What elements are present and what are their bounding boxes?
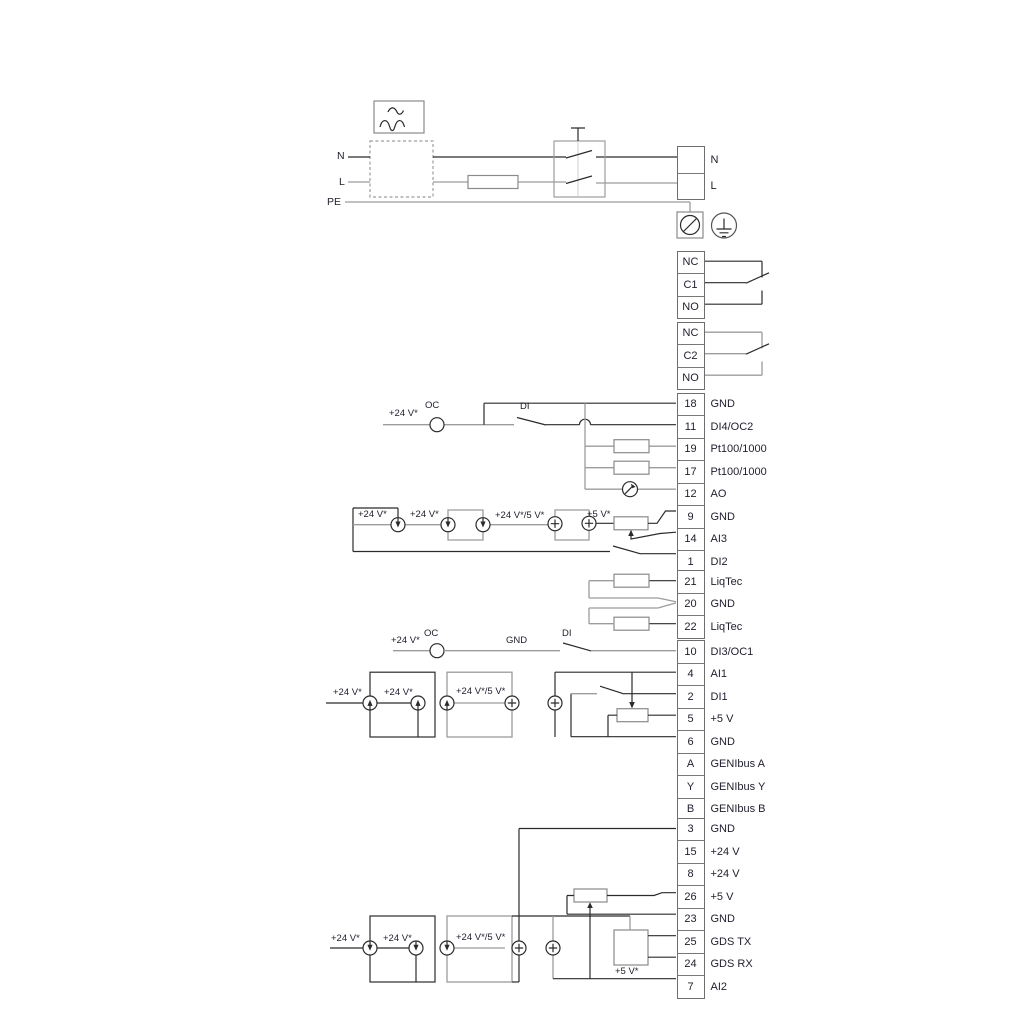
terminal-block-io-top: 18GND11DI4/OC219Pt100/100017Pt100/100012…	[677, 393, 705, 574]
terminal-block-io-bottom: 3GND15+24 V8+24 V26+5 V23GND25GDS TX24GD…	[677, 818, 705, 999]
mains-pe-label: PE	[327, 196, 341, 208]
di3-oc1-circuit	[393, 643, 676, 658]
terminal-row: 22LiqTec	[678, 615, 704, 638]
source-frame-1	[370, 916, 435, 982]
terminal-label: GND	[711, 736, 735, 748]
supply-label: +24 V*	[331, 933, 360, 944]
emc-filter-box	[370, 141, 433, 197]
terminal-block-mains: NL	[677, 146, 705, 200]
terminal-label: DI3/OC1	[711, 646, 754, 658]
wiring-diagram: N L PE +24 V* OC DI +24 V* +24 V* +24 V*…	[0, 0, 1024, 1024]
analog-output-meter-symbol	[623, 482, 638, 497]
terminal-label: GDS TX	[711, 936, 752, 948]
terminal-label: DI1	[711, 691, 728, 703]
mains-n-label: N	[337, 150, 345, 162]
voltage-source-plus-icon	[546, 941, 560, 955]
terminal-row: N	[678, 147, 704, 173]
terminal-row: 5+5 V	[678, 708, 704, 731]
terminal-label: GDS RX	[711, 958, 753, 970]
terminal-row: 9GND	[678, 505, 704, 528]
terminal-row: NC	[678, 323, 704, 345]
ai1-di1-source-circuit	[326, 672, 676, 737]
terminal-label: GND	[711, 823, 735, 835]
current-source-down-icon	[391, 518, 405, 532]
supply-label: +5 V*	[615, 966, 639, 977]
potentiometer-ai3	[614, 517, 648, 530]
terminal-label: GND	[711, 598, 735, 610]
pt100-resistor-2	[614, 461, 649, 474]
terminal-label: AI3	[711, 533, 728, 545]
terminal-block-liqtec: 21LiqTec20GND22LiqTec	[677, 570, 705, 639]
current-source-up-icon	[411, 696, 425, 710]
terminal-label: +24 V	[711, 846, 740, 858]
supply-label: +24 V*/5 V*	[456, 932, 505, 943]
oc-output-symbol	[430, 418, 444, 432]
terminal-label: N	[711, 154, 719, 166]
supply-label: +24 V*	[383, 933, 412, 944]
protective-earth-icon	[712, 213, 737, 238]
gds-sensor-box	[614, 916, 676, 965]
terminal-row: YGENIbus Y	[678, 775, 704, 798]
terminal-row: 3GND	[678, 819, 704, 841]
potentiometer-ai2	[574, 889, 607, 902]
potentiometer-ai1	[617, 709, 648, 722]
terminal-row: AGENIbus A	[678, 753, 704, 776]
pt100-sensors-circuit	[585, 403, 676, 497]
terminal-label: GND	[711, 913, 735, 925]
terminal-row: 23GND	[678, 908, 704, 931]
terminal-row: 24GDS RX	[678, 953, 704, 976]
terminal-label: GENIbus Y	[711, 781, 766, 793]
current-source-down-icon	[476, 518, 490, 532]
terminal-row: 10DI3/OC1	[678, 641, 704, 663]
voltage-source-plus-icon	[548, 517, 562, 531]
terminal-label: AI2	[711, 981, 728, 993]
terminal-label: GENIbus A	[711, 758, 765, 770]
voltage-source-plus-icon	[505, 696, 519, 710]
liqtec-sensors-circuit	[589, 574, 676, 630]
terminal-row: 19Pt100/1000	[678, 438, 704, 461]
terminal-row: 26+5 V	[678, 885, 704, 908]
terminal-label: +5 V	[711, 891, 734, 903]
terminal-label: GND	[711, 398, 735, 410]
terminal-row: 14AI3	[678, 528, 704, 551]
terminal-row: 20GND	[678, 593, 704, 616]
terminal-row: 7AI2	[678, 975, 704, 998]
supply-label: +24 V*	[358, 509, 387, 520]
current-source-down-icon	[441, 518, 455, 532]
terminal-block-io-mid: 10DI3/OC14AI12DI15+5 V6GNDAGENIbus AYGEN…	[677, 640, 705, 821]
terminal-label: Pt100/1000	[711, 466, 767, 478]
liqtec-sensor-2	[614, 617, 649, 630]
terminal-label: GND	[711, 511, 735, 523]
terminal-label: GENIbus B	[711, 803, 766, 815]
oc-output-symbol	[430, 644, 444, 658]
source-frame-2	[447, 672, 512, 737]
terminal-row: 21LiqTec	[678, 571, 704, 593]
di-label: DI	[520, 401, 530, 412]
terminal-block-relay1: NCC1NO	[677, 251, 705, 320]
terminal-row: NC	[678, 252, 704, 274]
ai2-gds-source-circuit	[330, 829, 676, 983]
di-label: DI	[562, 628, 572, 639]
terminal-row: 15+24 V	[678, 840, 704, 863]
terminal-row: 17Pt100/1000	[678, 460, 704, 483]
terminal-row: L	[678, 173, 704, 200]
terminal-label: +24 V	[711, 868, 740, 880]
terminal-row: 4AI1	[678, 663, 704, 686]
terminal-row: C2	[678, 344, 704, 367]
terminal-label: DI4/OC2	[711, 421, 754, 433]
terminal-row: C1	[678, 273, 704, 296]
terminal-row: 2DI1	[678, 685, 704, 708]
terminal-block-relay2: NCC2NO	[677, 322, 705, 391]
supply-label: +5 V*	[587, 509, 611, 520]
terminal-label: +5 V	[711, 713, 734, 725]
supply-label: +24 V*	[389, 408, 418, 419]
oc-label: OC	[424, 628, 438, 639]
main-switch	[554, 128, 605, 197]
terminal-row: 11DI4/OC2	[678, 415, 704, 438]
terminal-label: LiqTec	[711, 621, 743, 633]
gnd-label: GND	[506, 635, 527, 646]
current-source-up-icon	[363, 696, 377, 710]
supply-label: +24 V*	[391, 635, 420, 646]
terminal-label: Pt100/1000	[711, 443, 767, 455]
current-source-up-icon	[440, 696, 454, 710]
liqtec-sensor-1	[614, 574, 649, 587]
supply-label: +24 V*	[333, 687, 362, 698]
fuse-symbol	[468, 176, 518, 189]
terminal-row: NO	[678, 296, 704, 319]
terminal-row: 25GDS TX	[678, 930, 704, 953]
terminal-label: AI1	[711, 668, 728, 680]
supply-label: +24 V*/5 V*	[495, 510, 544, 521]
source-frame-2	[447, 916, 512, 982]
relay1-circuit	[702, 261, 769, 304]
voltage-source-plus-icon	[548, 696, 562, 710]
ac-source-symbol	[374, 101, 424, 133]
terminal-label: L	[711, 180, 717, 192]
voltage-source-plus-icon	[512, 941, 526, 955]
pt100-resistor-1	[614, 440, 649, 453]
terminal-row: NO	[678, 367, 704, 390]
terminal-row: 18GND	[678, 394, 704, 416]
terminal-row: 12AO	[678, 483, 704, 506]
current-source-down-icon	[363, 941, 377, 955]
pe-screw-terminal	[677, 212, 703, 238]
terminal-row: 6GND	[678, 730, 704, 753]
terminal-label: AO	[711, 488, 727, 500]
terminal-row: 8+24 V	[678, 863, 704, 886]
oc-label: OC	[425, 400, 439, 411]
terminal-label: LiqTec	[711, 576, 743, 588]
mains-l-label: L	[339, 176, 345, 188]
relay2-circuit	[702, 332, 769, 375]
terminal-label: DI2	[711, 556, 728, 568]
current-source-down-icon	[440, 941, 454, 955]
supply-label: +24 V*/5 V*	[456, 686, 505, 697]
supply-label: +24 V*	[384, 687, 413, 698]
supply-label: +24 V*	[410, 509, 439, 520]
